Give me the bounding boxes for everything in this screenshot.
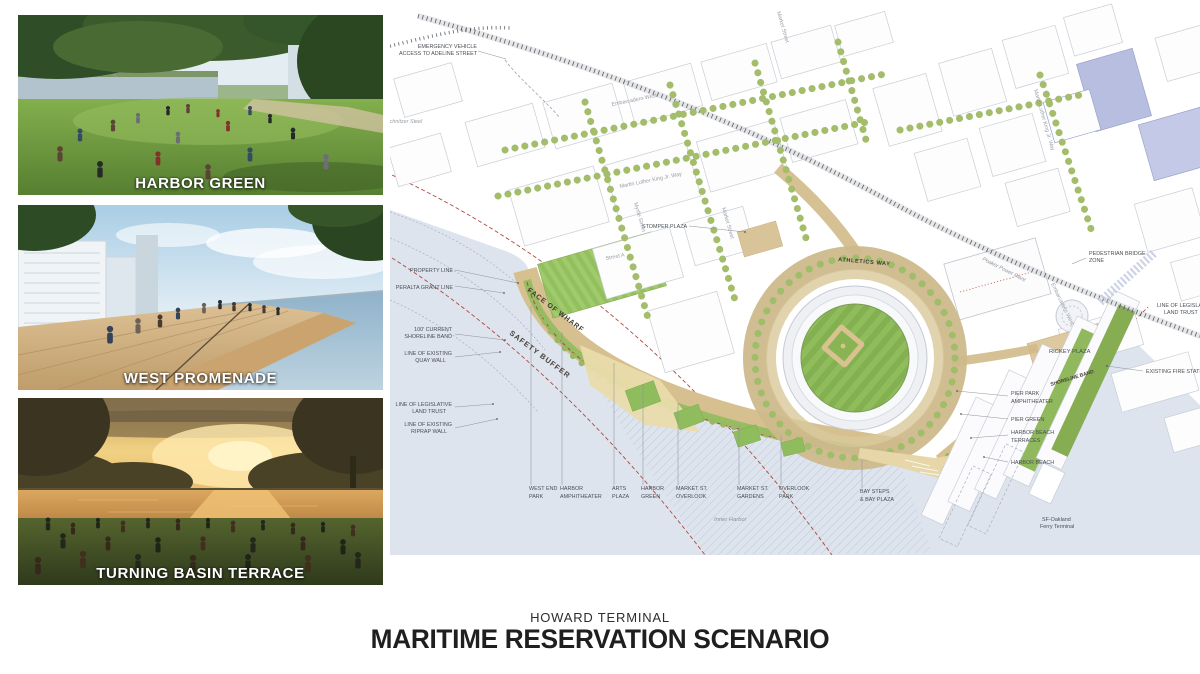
board-title: MARITIME RESERVATION SCENARIO [18,625,1182,654]
label-emergency-access-2: ACCESS TO ADELINE STREET [399,51,478,57]
label-harbor-beach-terraces: HARBOR BEACH [1011,430,1054,436]
label-stomper-plaza: STOMPER PLAZA [642,224,688,230]
person-silhouette [200,536,205,550]
label-overlook-park-2: PARK [779,494,794,500]
person-silhouette [135,318,141,333]
person-silhouette [206,518,210,528]
person-silhouette [231,521,236,533]
person-silhouette [340,539,346,554]
label-overlook-park: OVERLOOK [779,486,810,492]
person-silhouette [351,525,356,537]
person-silhouette [321,522,325,532]
label-inner-harbor: Inner Harbor [714,517,748,523]
label-shoreline-band-2: SHORELINE BAND [404,334,452,340]
label-west-end-park: WEST END [529,486,557,492]
person-silhouette [216,109,220,117]
render-harbor-green: HARBOR GREEN [18,15,383,195]
label-ferry-terminal: SF-Oakland [1042,517,1071,523]
label-rickey-plaza: RICKEY PLAZA [1049,349,1091,355]
label-arts-plaza: ARTS [612,486,627,492]
person-silhouette [262,305,266,313]
person-silhouette [78,129,83,142]
person-silhouette [46,518,51,531]
person-silhouette [57,146,63,161]
person-silhouette [276,307,280,315]
label-pier-park-amphitheater-2: AMPHITHEATER [1011,399,1053,405]
label-quay-wall-2: QUAY WALL [415,358,446,364]
ballpark [755,258,955,458]
label-shoreline-band: 100' CURRENT [414,327,453,333]
label-line-legislative-east: LINE OF LEGISLATIVE [1157,303,1200,309]
label-harbor-amphitheater-2: AMPHITHEATER [560,494,602,500]
person-silhouette [248,303,252,311]
person-silhouette [248,106,252,115]
person-silhouette [291,128,296,140]
label-market-st-overlook-2: OVERLOOK [676,494,707,500]
person-silhouette [60,533,66,548]
person-silhouette [155,151,160,165]
harbor-green-scene [18,15,383,195]
person-silhouette [268,114,272,123]
label-pier-park-amphitheater: PIER PARK [1011,391,1040,397]
label-quay-wall: LINE OF EXISTING [404,351,452,357]
person-silhouette [155,537,161,552]
label-land-trust: LINE OF LEGISLATIVE [395,402,452,408]
label-riprap-wall: LINE OF EXISTING [404,422,452,428]
label-market-st-overlook: MARKET ST. [676,486,708,492]
person-silhouette [111,120,116,132]
label-harbor-green-2: GREEN [641,494,660,500]
person-silhouette [166,106,170,115]
site-plan: EMERGENCY VEHICLEACCESS TO ADELINE STREE… [390,0,1200,555]
person-silhouette [218,300,222,309]
label-west-end-park-2: PARK [529,494,544,500]
person-silhouette [226,121,230,131]
person-silhouette [176,132,181,144]
person-silhouette [291,523,296,535]
person-silhouette [176,308,181,320]
board-subtitle: HOWARD TERMINAL [0,610,1200,625]
person-silhouette [300,536,305,550]
person-silhouette [146,518,150,528]
person-silhouette [250,537,256,552]
person-silhouette [107,326,113,344]
turning-basin-scene [18,398,383,585]
label-arts-plaza-2: PLAZA [612,494,629,500]
playing-field [801,304,909,412]
person-silhouette [121,521,126,533]
person-silhouette [71,523,76,535]
label-property-line: PROPERTY LINE [410,268,453,274]
label-existing-fire-station: EXISTING FIRE STATION [1146,369,1200,375]
caption-harbor-green: HARBOR GREEN [18,175,383,192]
person-silhouette [261,520,265,530]
west-promenade-scene [18,205,383,390]
label-harbor-beach: HARBOR BEACH [1011,460,1054,466]
label-ferry-terminal-2: Ferry Terminal [1040,524,1074,530]
presentation-board: HARBOR GREEN [0,0,1200,674]
person-silhouette [136,113,140,123]
label-riprap-wall-2: RIPRAP WALL [411,429,447,435]
person-silhouette [96,518,100,528]
caption-turning-basin-terrace: TURNING BASIN TERRACE [18,565,383,582]
label-bay-steps-2: & BAY PLAZA [860,497,894,503]
label-harbor-amphitheater: HARBOR [560,486,583,492]
person-silhouette [247,147,252,161]
caption-west-promenade: WEST PROMENADE [18,370,383,387]
person-silhouette [158,315,163,328]
label-bay-steps: BAY STEPS [860,489,890,495]
render-west-promenade: WEST PROMENADE [18,205,383,390]
label-pedestrian-bridge-2: ZONE [1089,258,1104,264]
person-silhouette [323,154,329,169]
render-turning-basin-terrace: TURNING BASIN TERRACE [18,398,383,585]
label-harbor-green: HARBOR [641,486,664,492]
label-schnitzer-steel: Schnitzer Steel [390,119,423,125]
person-silhouette [202,303,206,313]
person-silhouette [186,104,190,113]
label-peralta-grant-line: PERALTA GRANT LINE [396,285,454,291]
person-silhouette [176,519,181,531]
label-pier-green: PIER GREEN [1011,417,1044,423]
label-market-st-gardens-2: GARDENS [737,494,764,500]
label-market-st-gardens: MARKET ST. [737,486,769,492]
title-block: HOWARD TERMINAL MARITIME RESERVATION SCE… [0,610,1200,654]
label-pedestrian-bridge: PEDESTRIAN BRIDGE [1089,251,1146,257]
site-plan-drawing: EMERGENCY VEHICLEACCESS TO ADELINE STREE… [390,0,1200,555]
label-land-trust-2: LAND TRUST [412,409,446,415]
label-line-legislative-east-2: LAND TRUST [1164,310,1198,316]
label-emergency-access: EMERGENCY VEHICLE [418,44,478,50]
label-harbor-beach-terraces-2: TERRACES [1011,438,1041,444]
person-silhouette [232,302,236,311]
person-silhouette [105,536,110,550]
